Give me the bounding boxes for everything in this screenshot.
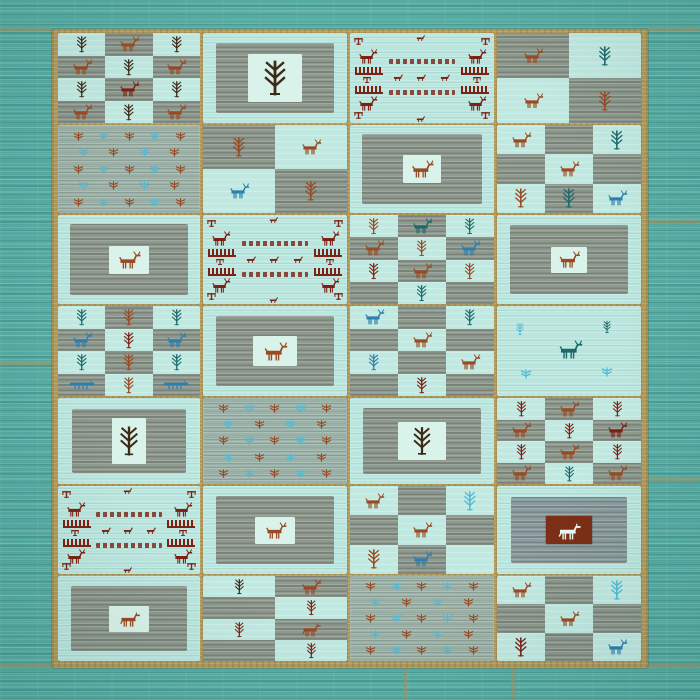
checker-cell [497, 604, 545, 632]
deer-icon [164, 59, 188, 75]
checker-cell [105, 351, 152, 374]
checker-cell [545, 184, 593, 213]
tree-icon [514, 636, 528, 658]
checker-cell [153, 329, 200, 352]
scatter-grid [58, 125, 200, 213]
tiny-animals [246, 255, 304, 263]
checker-cell [497, 184, 545, 213]
anchor-icon [325, 258, 335, 266]
goat-icon [101, 526, 112, 534]
side-deer [356, 96, 379, 111]
checker-cell [398, 329, 446, 352]
deer-icon [164, 104, 188, 120]
checker-cell [398, 306, 446, 329]
checker-cell [153, 78, 200, 101]
corner-mark [333, 292, 344, 301]
checker-cell [275, 640, 347, 661]
checker-cell [497, 441, 545, 463]
bird-icon [442, 613, 453, 624]
anchor-icon [480, 111, 491, 120]
deer-icon [70, 59, 94, 75]
edge-mark [269, 296, 279, 303]
bird-icon [370, 597, 381, 608]
tree-icon [610, 579, 624, 601]
deer-icon [209, 231, 232, 246]
bird-icon [401, 629, 412, 640]
bird-icon [175, 164, 186, 175]
deer-icon [465, 49, 488, 64]
scatter-item [555, 340, 585, 359]
scatter-row [350, 645, 494, 656]
checker-cell [398, 282, 446, 304]
tree-icon [171, 353, 182, 372]
bird-icon [391, 581, 402, 592]
checker-cell [105, 78, 152, 101]
deer-icon [171, 549, 194, 564]
bird-icon [73, 131, 84, 142]
bird-icon [223, 419, 234, 430]
anchor-icon [61, 490, 72, 499]
tree-icon [612, 443, 623, 461]
deer-icon [555, 340, 585, 359]
panel-r6c1-pictograph [58, 486, 200, 574]
horse-icon [299, 621, 323, 637]
tiny-animals [101, 526, 158, 534]
bird-icon [321, 435, 332, 446]
center-medallion [253, 336, 297, 366]
deer-icon [605, 190, 629, 206]
scatter-row [203, 435, 347, 446]
checker-cell [545, 441, 593, 463]
bird-icon [149, 197, 160, 208]
checker-cell [545, 604, 593, 632]
scatter-row [203, 419, 347, 430]
bird-icon [139, 180, 150, 191]
tree-icon [368, 262, 379, 280]
deer-icon [262, 522, 289, 539]
checker-cell [446, 374, 494, 397]
bird-icon [463, 629, 474, 640]
checker-cell [350, 306, 398, 329]
goat-icon [293, 255, 304, 263]
comb-band [167, 539, 195, 547]
checker-cell [593, 576, 641, 604]
bird-icon [254, 419, 265, 430]
checker-cell [350, 237, 398, 259]
deer-icon [557, 611, 581, 627]
bird-icon [175, 131, 186, 142]
side-deer [465, 49, 488, 64]
bird-icon [365, 613, 376, 624]
deer-icon [362, 493, 386, 509]
panel-r6c4-redbox [497, 486, 641, 574]
deer-icon [509, 422, 533, 438]
center-medallion [109, 606, 149, 632]
deer-icon [410, 218, 434, 234]
pictograph-text-row [96, 512, 161, 517]
tree-icon [123, 331, 134, 350]
tree-icon [367, 548, 381, 570]
deer-icon [509, 582, 533, 598]
center-medallion [109, 246, 149, 274]
bird-icon [269, 403, 280, 414]
checker-cell [398, 515, 446, 544]
background-seam [403, 666, 407, 700]
checker-cell [275, 597, 347, 618]
pictograph-text-row [389, 59, 455, 64]
tree-icon [263, 58, 287, 98]
anchor-icon [215, 258, 225, 266]
comb-band [63, 539, 91, 547]
tree-icon [171, 35, 182, 54]
center-medallion [112, 418, 146, 464]
deer-icon [117, 81, 141, 97]
background-seam [0, 27, 52, 31]
bird-icon [295, 468, 306, 479]
pictograph-text-row [242, 241, 308, 246]
side-deer [209, 231, 232, 246]
checker-cell [545, 576, 593, 604]
deer-icon [605, 465, 629, 481]
goat-icon [123, 566, 133, 573]
checker-cell [446, 515, 494, 544]
panel-r1c4-checker [497, 33, 641, 123]
scatter-item [601, 320, 613, 334]
bird-icon [601, 365, 613, 379]
goat-icon [146, 526, 157, 534]
tree-icon [368, 217, 379, 235]
scatter-grid [203, 398, 347, 484]
tree-icon [464, 308, 475, 327]
anchor-icon [472, 76, 482, 84]
bird-icon [295, 403, 306, 414]
bird-icon [124, 197, 135, 208]
scatter-row [203, 452, 347, 463]
tree-icon [76, 80, 87, 99]
tree-icon [234, 578, 245, 595]
checker-cell [593, 463, 641, 485]
deer-icon [299, 139, 323, 155]
comb-band [461, 86, 489, 94]
bird-icon [391, 645, 402, 656]
scatter-row [350, 613, 494, 624]
anchor-icon [70, 529, 80, 537]
tree-icon [514, 187, 528, 209]
checker-cell [593, 154, 641, 183]
panel-r1c2-field [203, 33, 347, 123]
tree-icon [564, 465, 575, 483]
checker-cell [350, 486, 398, 515]
bird-icon [244, 435, 255, 446]
side-deer [209, 278, 232, 293]
checker-cell [446, 351, 494, 374]
deer-icon [64, 502, 87, 517]
bird-icon [149, 164, 160, 175]
checker-cell [58, 306, 105, 329]
checker-cell [105, 374, 152, 397]
checker-cell [446, 260, 494, 282]
goat-icon [123, 526, 134, 534]
bird-icon [254, 452, 265, 463]
center-medallion [403, 155, 441, 183]
bird-icon [98, 131, 109, 142]
checker-cell [398, 545, 446, 574]
deer-icon [410, 332, 434, 348]
checker-cell [350, 515, 398, 544]
deer-icon [509, 465, 533, 481]
side-mark [325, 258, 335, 266]
checker-cell [593, 184, 641, 213]
bird-icon [416, 581, 427, 592]
tree-icon [562, 187, 576, 209]
bird-icon [169, 147, 180, 158]
bird-icon [432, 629, 443, 640]
checker-cell [58, 101, 105, 124]
scatter-row [58, 131, 200, 142]
checker-cell [153, 351, 200, 374]
panel-r4c2-field [203, 306, 347, 396]
anchor-icon [480, 37, 491, 46]
deer-icon [410, 522, 434, 538]
bird-icon [432, 597, 443, 608]
bird-icon [73, 197, 84, 208]
deer-icon [318, 231, 341, 246]
checker-cell [58, 351, 105, 374]
panel-r7c2-checker [203, 576, 347, 661]
bird-icon [321, 468, 332, 479]
edge-mark [416, 34, 426, 41]
anchor-icon [353, 37, 364, 46]
checker-cell [545, 154, 593, 183]
deer-icon [356, 96, 379, 111]
panel-r3c4-field [497, 215, 641, 304]
checker-cell [153, 306, 200, 329]
deer-icon [458, 240, 482, 256]
deer-icon [64, 549, 87, 564]
tree-icon [123, 308, 134, 327]
deer-icon [227, 183, 251, 199]
checker-cell [446, 329, 494, 352]
goat-icon [269, 296, 279, 303]
side-mark [70, 529, 80, 537]
deer-icon [557, 444, 581, 460]
checker-cell [153, 374, 200, 397]
checker-cell [203, 640, 275, 661]
bird-icon [321, 403, 332, 414]
side-mark [472, 76, 482, 84]
panel-r5c3-field [350, 398, 494, 484]
center-medallion [248, 54, 302, 102]
side-mark [178, 529, 188, 537]
center-medallion [398, 422, 446, 460]
edge-mark [123, 566, 133, 573]
checker-cell [593, 125, 641, 154]
deer-icon [605, 639, 629, 655]
tree-icon [610, 129, 624, 151]
corner-mark [186, 490, 197, 499]
bird-icon [218, 468, 229, 479]
checker-cell [545, 420, 593, 442]
deer-icon [410, 551, 434, 567]
checker-cell [593, 633, 641, 661]
bird-icon [175, 197, 186, 208]
tree-icon [598, 45, 612, 67]
corner-mark [480, 111, 491, 120]
tree-icon [123, 58, 134, 77]
tree-icon [612, 400, 623, 418]
horse-icon [554, 521, 584, 540]
anchor-icon [206, 219, 217, 228]
deer-icon [465, 96, 488, 111]
bird-icon [468, 581, 479, 592]
tree-icon [306, 599, 317, 616]
goat-icon [246, 255, 257, 263]
checker-cell [203, 169, 275, 213]
anchor-icon [353, 111, 364, 120]
tree-icon [76, 308, 87, 327]
deer-icon [521, 93, 545, 109]
scatter-item [520, 367, 532, 381]
anchor-icon [333, 292, 344, 301]
scatter-row [58, 164, 200, 175]
tree-icon [516, 400, 527, 418]
bird-icon [416, 613, 427, 624]
comb-band [208, 249, 236, 257]
checker-cell [497, 78, 569, 123]
deer-icon [557, 161, 581, 177]
side-mark [215, 258, 225, 266]
checker-cell [275, 125, 347, 169]
bird-icon [295, 435, 306, 446]
scatter-row [58, 147, 200, 158]
bird-icon [316, 452, 327, 463]
tree-icon [304, 180, 318, 202]
bird-icon [269, 468, 280, 479]
deer-icon [362, 240, 386, 256]
panel-r7c3-scatter [350, 576, 494, 661]
side-deer [171, 502, 194, 517]
bird-icon [416, 645, 427, 656]
goat-icon [416, 34, 426, 41]
side-deer [64, 502, 87, 517]
deer-icon [410, 263, 434, 279]
scatter-item [514, 322, 526, 336]
goat-icon [393, 73, 404, 81]
deer-icon [70, 332, 94, 348]
scatter-row [58, 180, 200, 191]
panel-r3c1-field [58, 215, 200, 304]
bird-icon [520, 367, 532, 381]
rug-photo [0, 0, 700, 700]
panel-r6c3-checker [350, 486, 494, 574]
comb-band [208, 268, 236, 276]
bird-icon [401, 597, 412, 608]
bird-icon [285, 419, 296, 430]
deer-icon [260, 342, 290, 361]
pictograph-text-row [389, 90, 455, 95]
checker-cell [545, 125, 593, 154]
deer-icon [356, 49, 379, 64]
pictograph-text-row [242, 272, 308, 277]
background-seam [648, 27, 700, 31]
deer-icon [299, 579, 323, 595]
edge-mark [416, 115, 426, 122]
side-deer [171, 549, 194, 564]
checker-cell [446, 545, 494, 574]
comb-band [355, 67, 383, 75]
checker-cell [398, 237, 446, 259]
deer-icon [318, 278, 341, 293]
panel-r2c4-checker [497, 125, 641, 213]
checker-cell [350, 329, 398, 352]
tiny-animals [393, 73, 451, 81]
panel-r3c2-pictograph [203, 215, 347, 304]
edge-mark [123, 487, 133, 494]
goat-icon [123, 487, 133, 494]
corner-mark [333, 219, 344, 228]
checker-cell [497, 633, 545, 661]
checker-cell [203, 619, 275, 640]
checker-cell [105, 329, 152, 352]
tree-icon [514, 322, 526, 336]
checker-cell [350, 260, 398, 282]
checker-cell [350, 215, 398, 237]
bird-icon [468, 613, 479, 624]
deer-icon [164, 332, 188, 348]
bird-icon [285, 452, 296, 463]
anchor-icon [362, 76, 372, 84]
corner-mark [480, 37, 491, 46]
anchor-icon [333, 219, 344, 228]
bird-icon [139, 147, 150, 158]
background-seam [511, 666, 515, 700]
side-deer [318, 231, 341, 246]
checker-cell [545, 463, 593, 485]
checker-cell [497, 33, 569, 78]
deer-icon [509, 132, 533, 148]
bird-icon [73, 164, 84, 175]
goat-icon [416, 73, 427, 81]
checker-cell [350, 374, 398, 397]
checker-cell [497, 398, 545, 420]
bird-icon [316, 419, 327, 430]
corner-mark [61, 490, 72, 499]
bird-icon [124, 131, 135, 142]
checker-cell [203, 597, 275, 618]
goat-icon [269, 216, 279, 223]
anchor-icon [206, 292, 217, 301]
background-seam [648, 477, 700, 481]
comb-band [461, 67, 489, 75]
checker-cell [398, 260, 446, 282]
bird-icon [370, 629, 381, 640]
tree-icon [171, 308, 182, 327]
bird-icon [78, 180, 89, 191]
checker-cell [446, 486, 494, 515]
tree-icon [123, 376, 134, 395]
center-medallion [551, 247, 587, 273]
bird-icon [463, 597, 474, 608]
scatter-row [350, 629, 494, 640]
panel-r4c4-scatterplain [497, 306, 641, 396]
deer-icon [605, 422, 629, 438]
center-medallion [546, 516, 592, 544]
checker-cell [153, 33, 200, 56]
deer-icon [408, 160, 436, 178]
tree-icon [464, 262, 475, 280]
background-seam [0, 361, 52, 365]
horse-icon [116, 610, 143, 627]
